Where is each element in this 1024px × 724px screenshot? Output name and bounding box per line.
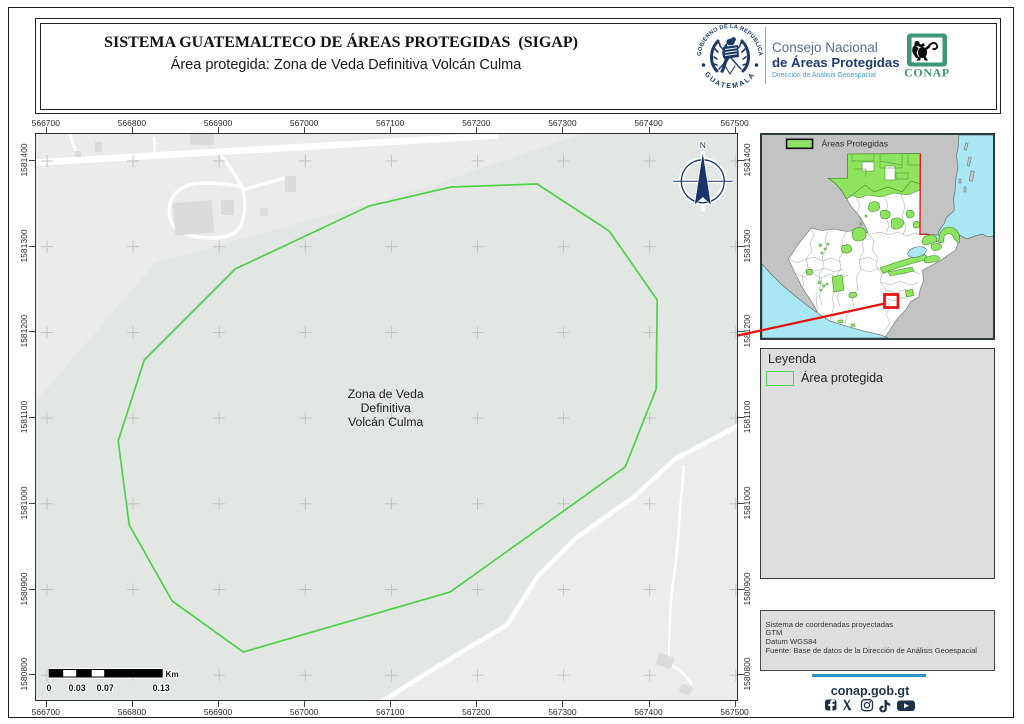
svg-text:Áreas Protegidas: Áreas Protegidas xyxy=(821,139,888,149)
svg-text:CONAP: CONAP xyxy=(904,66,950,80)
svg-text:Definitiva: Definitiva xyxy=(360,401,410,415)
svg-text:Volcán Culma: Volcán Culma xyxy=(348,415,423,429)
svg-text:0.03: 0.03 xyxy=(68,683,85,693)
svg-text:0.07: 0.07 xyxy=(96,683,113,693)
svg-text:0.13: 0.13 xyxy=(152,683,169,693)
svg-text:N: N xyxy=(700,140,706,150)
svg-text:0: 0 xyxy=(46,683,51,693)
svg-text:Km: Km xyxy=(165,670,178,679)
svg-text:Zona de Veda: Zona de Veda xyxy=(348,387,424,401)
